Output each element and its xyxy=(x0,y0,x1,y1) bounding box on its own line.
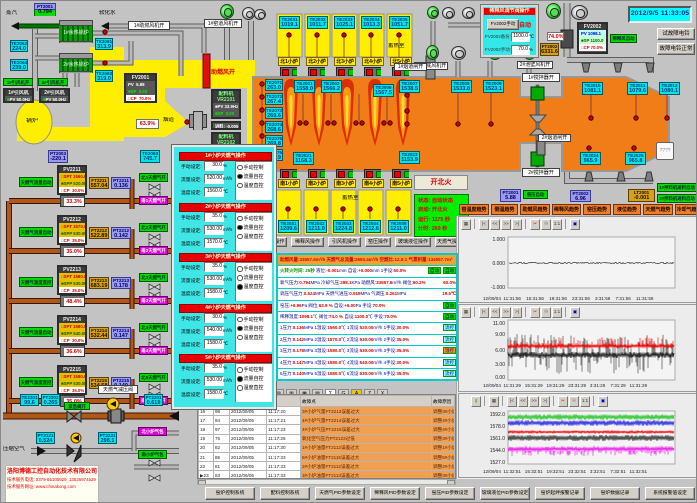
svg-text:1561.0: 1561.0 xyxy=(490,436,506,442)
svg-text:12/09/04 11:31:29 15:31:29: 12/09/04 11:31:29 15:31:29 19:31:29 23:3… xyxy=(483,383,648,388)
svg-text:11.00: 11.00 xyxy=(493,321,505,327)
svg-text:1527.0: 1527.0 xyxy=(490,460,506,466)
svg-text:1.000: 1.000 xyxy=(492,237,505,243)
svg-text:12/09/04 11:32:51 15:32:51: 12/09/04 11:32:51 15:32:51 19:32:51 23:3… xyxy=(483,469,648,474)
svg-text:0.000: 0.000 xyxy=(492,261,505,267)
svg-text:12/09/04 11:31:56 15:31:56: 12/09/04 11:31:56 15:31:56 19:31:56 23:3… xyxy=(483,296,654,301)
svg-text:-1.000: -1.000 xyxy=(491,285,505,291)
svg-text:6.00: 6.00 xyxy=(495,348,505,354)
svg-text:9.00: 9.00 xyxy=(495,332,505,338)
svg-text:1578.0: 1578.0 xyxy=(490,424,506,430)
svg-text:3.00: 3.00 xyxy=(495,362,505,368)
svg-text:1592.0: 1592.0 xyxy=(490,412,506,418)
svg-text:1544.0: 1544.0 xyxy=(490,448,506,454)
svg-text:0.00: 0.00 xyxy=(495,375,505,381)
